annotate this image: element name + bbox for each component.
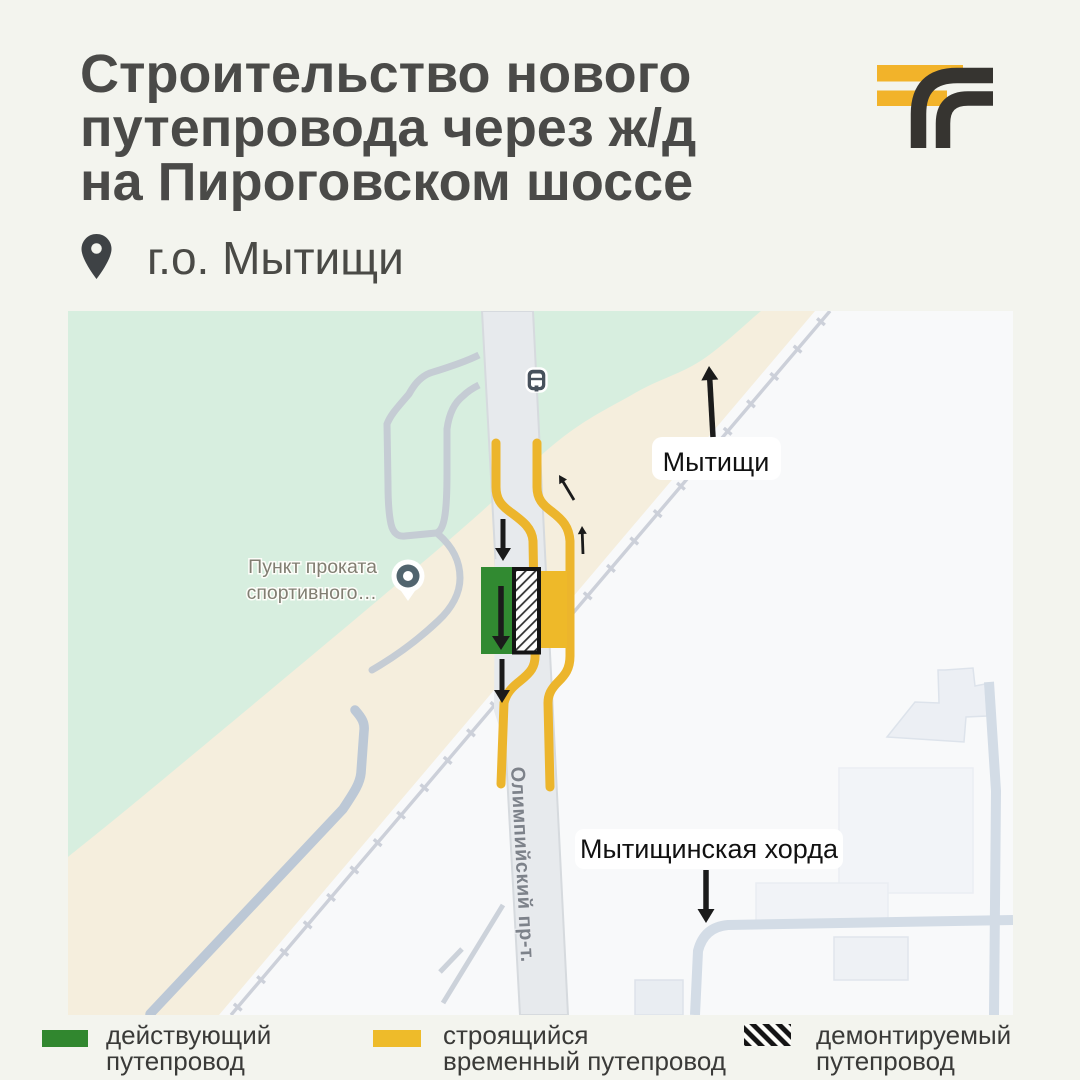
svg-text:Пункт проката: Пункт проката xyxy=(248,556,377,578)
svg-text:Мытищинская хорда: Мытищинская хорда xyxy=(580,834,839,864)
svg-text:путепровод: путепровод xyxy=(106,1046,245,1076)
svg-text:путепровод: путепровод xyxy=(816,1046,955,1076)
svg-text:спортивного…: спортивного… xyxy=(247,582,377,604)
svg-text:Мытищи: Мытищи xyxy=(663,447,770,477)
svg-text:временный путепровод: временный путепровод xyxy=(443,1046,726,1076)
